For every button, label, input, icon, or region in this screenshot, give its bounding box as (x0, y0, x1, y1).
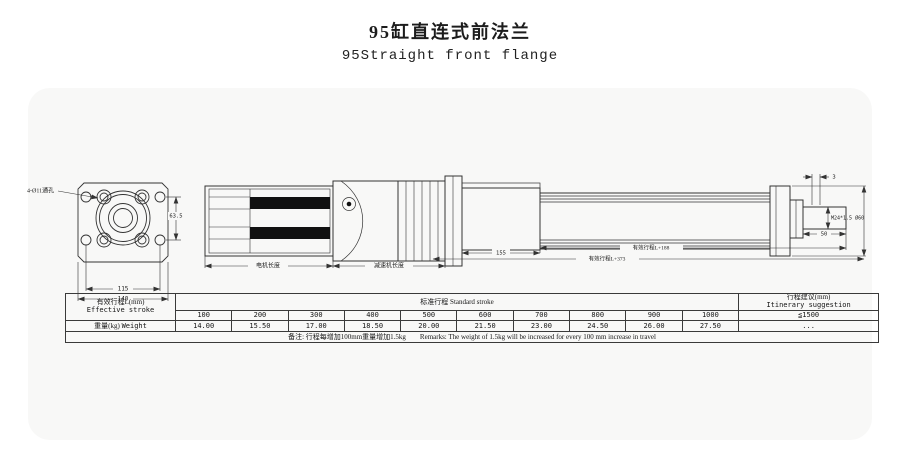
title-block: 95缸直连式前法兰 95Straight front flange (0, 18, 900, 64)
stroke-value: 900 (626, 311, 682, 321)
weight-value: 23.00 (513, 321, 569, 332)
spec-table: 有效行程L(mm) Effective stroke 标准行程 Standard… (65, 293, 879, 343)
standard-stroke-header: 标准行程 Standard stroke (176, 294, 739, 311)
side-view (205, 176, 846, 266)
page-subtitle: 95Straight front flange (0, 48, 900, 64)
weight-value: 17.00 (288, 321, 344, 332)
weight-en: Weight (122, 322, 147, 330)
stroke-value: 400 (344, 311, 400, 321)
head-length-dim-label: 155 (496, 251, 506, 257)
weight-value: 26.00 (626, 321, 682, 332)
stroke-values-row: 100 200 300 400 500 600 700 800 900 1000… (66, 311, 879, 321)
weight-value: 21.50 (457, 321, 513, 332)
stroke-value: 200 (232, 311, 288, 321)
weight-value: 24.50 (570, 321, 626, 332)
effective-stroke-en: Effective stroke (66, 307, 175, 315)
rod-tip-dim-label: 3 (832, 175, 835, 181)
weight-zh: 重量(kg) (94, 322, 120, 330)
weight-value: 20.00 (401, 321, 457, 332)
weight-value: 15.50 (232, 321, 288, 332)
remarks-cell: 备注: 行程每增加100mm重量增加1.5kg Remarks: The wei… (66, 332, 879, 343)
weight-value: 14.00 (176, 321, 232, 332)
weight-value: 18.50 (344, 321, 400, 332)
suggestion-en: Itinerary suggestion (739, 302, 878, 310)
stroke-value: 700 (513, 311, 569, 321)
weight-value: 27.50 (682, 321, 738, 332)
flange-holes-callout: 4-Ø11通孔 (27, 186, 54, 194)
stroke-value: 500 (401, 311, 457, 321)
rod-length-dim-label: 50 (821, 232, 828, 238)
stroke-value: 1000 (682, 311, 738, 321)
flange-hole-spacing-label: 115 (118, 286, 129, 293)
page-title: 95缸直连式前法兰 (0, 18, 900, 44)
reducer-length-label: 减速机长度 (374, 261, 404, 269)
rod-thread-label: M24*1.5 Ø60 (831, 215, 864, 222)
weight-header: 重量(kg) Weight (66, 321, 176, 332)
stroke-dim-lower-label: 有效行程L+373 (589, 254, 626, 262)
suggestion-value: ≦1500 (739, 311, 879, 321)
technical-drawing: 63.5 115 140 4-Ø11通孔 (0, 150, 900, 310)
stroke-value: 600 (457, 311, 513, 321)
stroke-value: 100 (176, 311, 232, 321)
weight-row: 重量(kg) Weight 14.00 15.50 17.00 18.50 20… (66, 321, 879, 332)
stroke-value: 800 (570, 311, 626, 321)
suggestion-header: 行程建议(mm) Itinerary suggestion (739, 294, 879, 311)
front-view (78, 183, 168, 262)
motor-length-label: 电机长度 (256, 261, 280, 269)
flange-height-dim-label: 63.5 (169, 214, 182, 220)
suggestion-weight: ... (739, 321, 879, 332)
stroke-dim-upper-label: 有效行程L+188 (633, 243, 670, 251)
stroke-value: 300 (288, 311, 344, 321)
effective-stroke-header: 有效行程L(mm) Effective stroke (66, 294, 176, 321)
